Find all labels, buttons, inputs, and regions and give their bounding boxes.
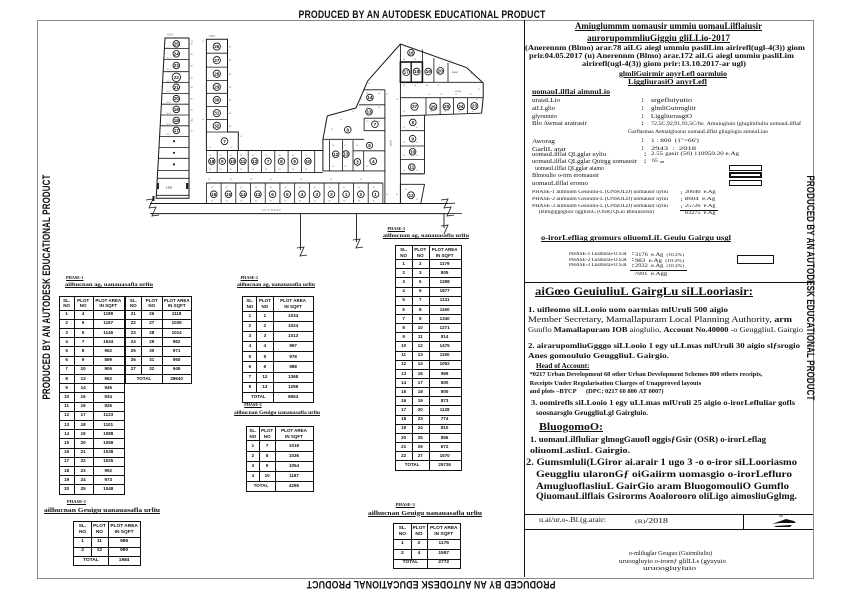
svg-text:30': 30'	[440, 94, 443, 96]
svg-text:30': 30'	[240, 201, 243, 203]
svg-text:90.0': 90.0'	[167, 57, 172, 59]
svg-text:30': 30'	[265, 155, 268, 157]
svg-text:27: 27	[214, 58, 220, 63]
svg-text:30': 30'	[360, 179, 363, 181]
svg-text:2: 2	[330, 192, 333, 197]
svg-text:25: 25	[444, 104, 450, 109]
svg-text:30': 30'	[219, 155, 222, 157]
svg-text:30': 30'	[190, 99, 193, 101]
svg-text:8: 8	[280, 159, 283, 164]
svg-text:30': 30'	[332, 166, 335, 168]
svg-text:Lsar: Lsar	[166, 186, 173, 190]
svg-text:30': 30'	[328, 187, 331, 189]
svg-text:7: 7	[374, 122, 377, 127]
svg-text:30': 30'	[343, 201, 346, 203]
svg-text:90.0': 90.0'	[167, 134, 172, 136]
svg-text:7: 7	[267, 159, 270, 164]
svg-text:26: 26	[214, 44, 220, 49]
svg-text:30': 30'	[344, 145, 347, 147]
svg-text:90.0': 90.0'	[167, 69, 172, 71]
svg-text:30': 30'	[250, 179, 253, 181]
svg-text:30': 30'	[211, 201, 214, 203]
svg-text:30': 30'	[240, 187, 243, 189]
svg-text:30': 30'	[208, 179, 211, 181]
svg-text:13: 13	[343, 152, 349, 157]
svg-text:28: 28	[214, 71, 220, 76]
svg-text:30': 30'	[403, 155, 406, 157]
svg-text:30': 30'	[190, 44, 193, 46]
svg-text:30': 30'	[414, 59, 417, 61]
svg-text:45': 45'	[229, 126, 232, 128]
svg-text:8: 8	[412, 120, 415, 125]
svg-text:12: 12	[252, 159, 258, 164]
svg-text:30': 30'	[455, 94, 458, 96]
svg-text:30': 30'	[299, 187, 302, 189]
svg-text:30': 30'	[209, 169, 212, 171]
svg-text:30': 30'	[284, 187, 287, 189]
svg-text:23: 23	[472, 104, 478, 109]
svg-text:14: 14	[367, 95, 373, 100]
svg-text:10: 10	[410, 149, 416, 154]
svg-text:30': 30'	[305, 155, 308, 157]
svg-text:30': 30'	[230, 147, 233, 149]
svg-text:13: 13	[255, 192, 261, 197]
svg-text:30': 30'	[414, 85, 417, 87]
svg-text:30': 30'	[230, 169, 233, 171]
svg-text:30': 30'	[373, 201, 376, 203]
svg-text:30': 30'	[366, 121, 369, 123]
svg-text:6: 6	[271, 192, 274, 197]
svg-text:30': 30'	[314, 187, 317, 189]
svg-text:5: 5	[368, 143, 371, 148]
svg-text:30': 30'	[472, 111, 475, 113]
svg-text:90.0': 90.0'	[167, 91, 172, 93]
svg-text:30': 30'	[278, 155, 281, 157]
svg-text:30': 30'	[428, 94, 431, 96]
svg-text:90.0': 90.0'	[167, 48, 172, 50]
svg-text:30': 30'	[356, 145, 359, 147]
svg-text:30': 30'	[240, 155, 243, 157]
svg-text:30': 30'	[202, 41, 205, 43]
svg-text:6: 6	[347, 127, 350, 132]
svg-text:30': 30'	[378, 121, 381, 123]
svg-text:30': 30'	[270, 179, 273, 181]
svg-text:30': 30'	[403, 85, 406, 87]
svg-text:30': 30'	[284, 201, 287, 203]
svg-text:10: 10	[230, 159, 236, 164]
svg-text:30': 30'	[305, 169, 308, 171]
svg-text:30': 30'	[330, 179, 333, 181]
svg-text:30': 30'	[403, 142, 406, 144]
svg-text:45': 45'	[229, 74, 232, 76]
svg-text:30': 30'	[340, 119, 343, 121]
svg-text:18: 18	[414, 69, 420, 74]
svg-text:30': 30'	[190, 87, 193, 89]
svg-text:30': 30'	[292, 155, 295, 157]
svg-text:30': 30'	[458, 111, 461, 113]
svg-text:20: 20	[174, 96, 180, 101]
svg-text:30': 30'	[190, 77, 193, 79]
svg-text:30': 30'	[416, 142, 419, 144]
svg-text:30': 30'	[300, 179, 303, 181]
svg-text:30': 30'	[403, 111, 406, 113]
svg-text:30': 30'	[219, 169, 222, 171]
svg-text:30': 30'	[478, 89, 481, 91]
svg-text:30': 30'	[230, 179, 233, 181]
svg-text:30': 30'	[299, 201, 302, 203]
svg-text:31: 31	[214, 111, 220, 116]
svg-text:30': 30'	[476, 99, 479, 101]
svg-text:45': 45'	[229, 47, 232, 49]
svg-text:1: 1	[374, 192, 377, 197]
svg-text:24: 24	[174, 51, 180, 56]
svg-text:11: 11	[409, 165, 414, 170]
svg-text:29: 29	[214, 84, 220, 89]
svg-text:30': 30'	[240, 169, 243, 171]
svg-text:30': 30'	[416, 170, 419, 172]
svg-text:30': 30'	[360, 99, 363, 101]
svg-text:30': 30'	[278, 169, 281, 171]
svg-text:Lsar: Lsar	[452, 70, 458, 74]
svg-text:45': 45'	[229, 60, 232, 62]
svg-text:9: 9	[293, 159, 296, 164]
svg-text:1: 1	[345, 192, 348, 197]
svg-text:21: 21	[174, 85, 180, 90]
svg-text:30': 30'	[225, 201, 228, 203]
svg-text:14: 14	[241, 192, 247, 197]
svg-text:9: 9	[411, 136, 414, 141]
svg-text:30': 30'	[430, 111, 433, 113]
svg-text:10: 10	[305, 159, 311, 164]
svg-text:25: 25	[174, 41, 180, 46]
svg-text:30': 30'	[270, 201, 273, 203]
svg-text:30': 30'	[378, 93, 381, 95]
svg-text:30': 30'	[373, 187, 376, 189]
svg-text:19: 19	[174, 107, 180, 112]
svg-text:30': 30'	[190, 109, 193, 111]
svg-text:18: 18	[174, 118, 180, 123]
svg-text:30': 30'	[403, 170, 406, 172]
svg-text:30': 30'	[444, 111, 447, 113]
svg-text:45': 45'	[229, 113, 232, 115]
svg-text:30': 30'	[403, 127, 406, 129]
svg-text:45': 45'	[229, 100, 232, 102]
svg-text:30': 30'	[358, 187, 361, 189]
svg-text:90.0': 90.0'	[167, 124, 172, 126]
svg-text:7: 7	[223, 139, 226, 144]
svg-text:30': 30'	[344, 166, 347, 168]
svg-text:16: 16	[211, 192, 217, 197]
svg-text:30': 30'	[343, 187, 346, 189]
svg-text:30': 30'	[416, 199, 419, 201]
svg-text:4: 4	[301, 192, 304, 197]
svg-text:30': 30'	[202, 119, 205, 121]
svg-text:30': 30'	[240, 136, 243, 138]
svg-text:11: 11	[240, 159, 245, 164]
svg-text:6a: 6a	[779, 513, 783, 518]
svg-text:30': 30'	[209, 155, 212, 157]
svg-text:128.0': 128.0'	[209, 35, 216, 38]
svg-text:30': 30'	[416, 127, 419, 129]
svg-text:30': 30'	[426, 85, 429, 87]
svg-text:30': 30'	[252, 169, 255, 171]
svg-text:30': 30'	[328, 201, 331, 203]
svg-text:30': 30'	[396, 194, 399, 196]
svg-text:16: 16	[408, 50, 414, 55]
svg-text:30': 30'	[386, 194, 389, 196]
svg-text:12: 12	[408, 193, 414, 198]
svg-text:4: 4	[372, 159, 375, 164]
svg-text:23: 23	[174, 63, 180, 68]
svg-text:30': 30'	[396, 99, 399, 101]
svg-text:30': 30'	[366, 166, 369, 168]
svg-text:17: 17	[404, 70, 410, 75]
svg-text:2 4 . 0 ' R O A D: 2 4 . 0 ' R O A D	[262, 208, 281, 212]
svg-text:30': 30'	[378, 107, 381, 109]
svg-text:90.0': 90.0'	[167, 113, 172, 115]
svg-text:45': 45'	[229, 87, 232, 89]
svg-text:30': 30'	[356, 166, 359, 168]
svg-text:9: 9	[221, 159, 224, 164]
svg-text:30': 30'	[190, 54, 193, 56]
svg-text:ROAD: ROAD	[389, 140, 392, 147]
svg-text:30': 30'	[386, 94, 389, 96]
svg-text:30': 30'	[416, 155, 419, 157]
svg-text:22: 22	[174, 75, 180, 80]
svg-text:30': 30'	[191, 119, 194, 121]
svg-text:30': 30'	[405, 189, 408, 191]
svg-text:30': 30'	[352, 111, 355, 113]
svg-text:30': 30'	[403, 59, 406, 61]
svg-text:12: 12	[333, 152, 339, 157]
svg-text:30: 30	[214, 98, 220, 103]
svg-text:30': 30'	[314, 201, 317, 203]
svg-text:5: 5	[286, 192, 289, 197]
svg-text:90.0': 90.0'	[167, 102, 172, 104]
svg-text:30': 30'	[225, 187, 228, 189]
svg-text:30': 30'	[470, 94, 473, 96]
svg-text:30': 30'	[191, 41, 194, 43]
svg-text:30': 30'	[292, 169, 295, 171]
svg-text:3: 3	[356, 159, 359, 164]
svg-text:20: 20	[438, 68, 444, 73]
svg-text:30': 30'	[252, 155, 255, 157]
svg-text:30': 30'	[190, 130, 193, 132]
svg-text:24: 24	[458, 104, 464, 109]
svg-text:32: 32	[214, 123, 220, 128]
svg-text:30': 30'	[331, 129, 334, 131]
svg-text:30': 30'	[265, 169, 268, 171]
svg-text:30': 30'	[230, 155, 233, 157]
svg-text:120.0': 120.0'	[167, 34, 174, 37]
svg-text:3: 3	[315, 192, 318, 197]
svg-text:30': 30'	[190, 66, 193, 68]
svg-text:30': 30'	[358, 201, 361, 203]
svg-text:2: 2	[360, 192, 363, 197]
svg-text:ROAD: ROAD	[455, 90, 462, 93]
svg-text:30': 30'	[209, 147, 212, 149]
svg-text:15: 15	[226, 192, 232, 197]
svg-text:18: 18	[209, 159, 215, 164]
svg-text:17: 17	[174, 128, 180, 133]
svg-text:30': 30'	[255, 201, 258, 203]
svg-text:30': 30'	[255, 187, 258, 189]
svg-text:27: 27	[412, 104, 418, 109]
svg-text:30': 30'	[368, 83, 371, 85]
svg-text:30': 30'	[270, 187, 273, 189]
svg-text:30': 30'	[437, 85, 440, 87]
svg-text:30': 30'	[332, 145, 335, 147]
svg-text:90.0': 90.0'	[167, 81, 172, 83]
svg-text:26: 26	[431, 104, 437, 109]
svg-text:13: 13	[366, 109, 372, 114]
svg-text:30': 30'	[211, 187, 214, 189]
svg-text:19: 19	[426, 69, 432, 74]
